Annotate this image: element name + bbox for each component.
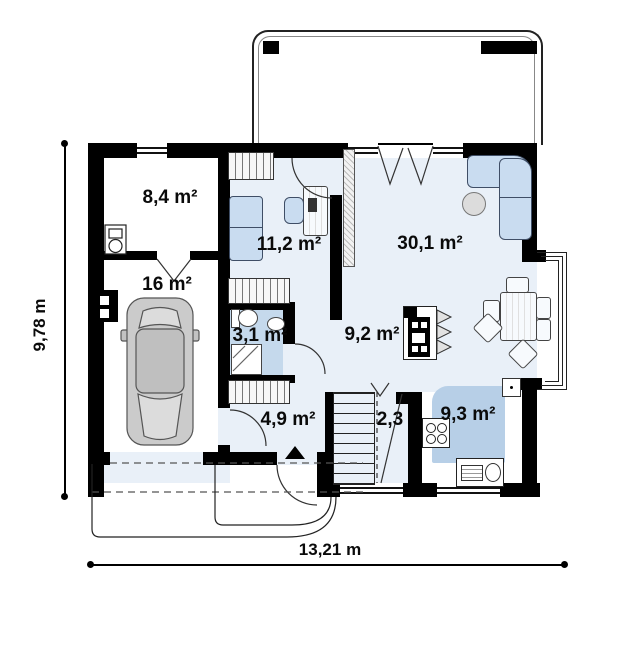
door-swing [371,383,389,396]
dimension-line-vertical [64,143,66,497]
stairs-rail [381,394,402,483]
terrace-door-swing [378,146,433,184]
porch-outline [215,465,331,525]
dimension-label-height: 9,78 m [30,299,50,352]
room-label-entry: 4,9 m² [261,409,316,431]
room-label-corridor: 2,3 [377,409,403,431]
room-label-cabinet: 11,2 m² [257,234,321,256]
door-arc [277,465,317,505]
car-icon [121,298,199,445]
room-label-hall: 9,2 m² [345,324,400,346]
dimension-dot [61,140,68,147]
room-label-living: 30,1 m² [397,233,462,255]
dimension-dot [61,493,68,500]
dimension-dot [561,561,568,568]
dimension-dot [87,561,94,568]
room-label-bathroom: 3,1 m² [233,325,288,347]
room-label-utility: 8,4 m² [143,187,198,209]
room-label-garage: 16 m² [142,274,192,296]
dimension-line-horizontal [90,564,565,566]
fireplace-heat-arrows [437,310,451,354]
room-label-kitchen: 9,3 m² [441,404,496,426]
dimension-label-width: 13,21 m [299,540,361,560]
floor-plan: 8,4 m² 16 m² 11,2 m² 30,1 m² 3,1 m² 9,2 … [0,0,640,645]
door-arc [292,158,332,198]
shower-lines [233,346,258,371]
boiler-icon [105,225,126,254]
door-arc [295,344,325,374]
